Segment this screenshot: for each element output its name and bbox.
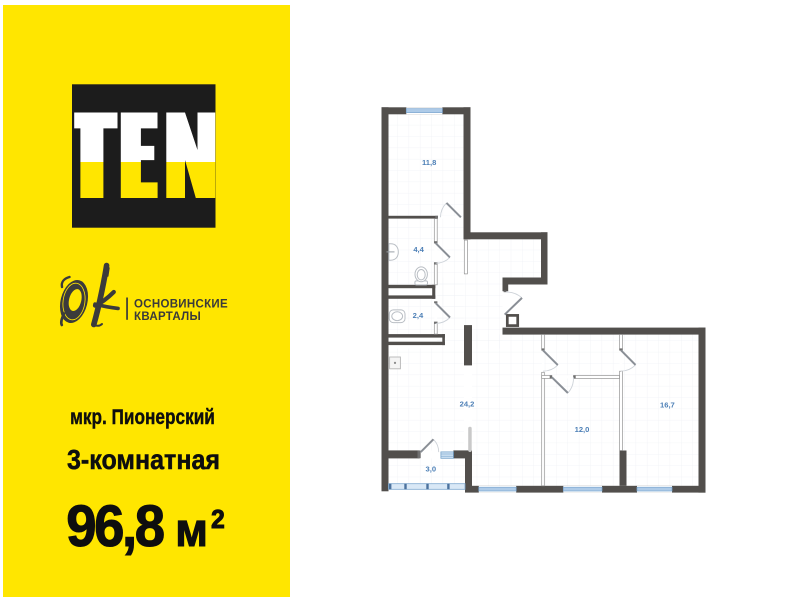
svg-text:3,0: 3,0: [426, 465, 437, 474]
svg-text:12,0: 12,0: [575, 425, 590, 434]
svg-text:2,4: 2,4: [413, 311, 424, 320]
svg-text:4,4: 4,4: [413, 245, 424, 254]
svg-text:24,2: 24,2: [460, 399, 475, 408]
svg-text:11,8: 11,8: [422, 158, 436, 167]
svg-text:16,7: 16,7: [660, 401, 675, 410]
